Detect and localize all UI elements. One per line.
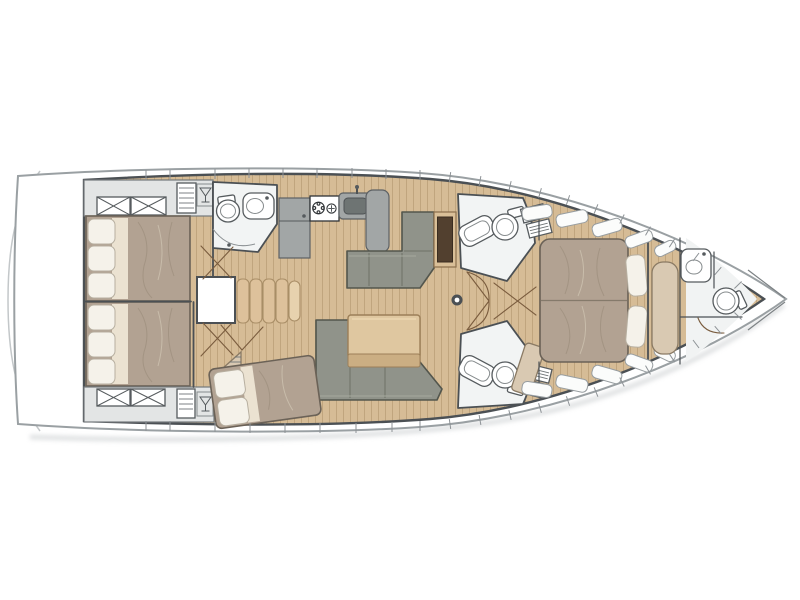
folding-table [348,315,420,367]
pillow [88,273,115,298]
slat-locker [177,389,195,418]
hatch-x-icon [97,389,165,406]
bench-seat [652,262,678,354]
companionway [197,277,300,323]
floor-plan-svg [0,0,800,600]
companionway-stairs [237,279,300,323]
galley-counter [366,190,389,252]
pillow [88,305,115,330]
fridge [279,198,310,258]
pillow [213,369,246,399]
pillow [217,397,250,427]
dark-chart-panel [434,212,456,267]
double-bed [86,302,190,386]
two-burner-stove [310,196,339,221]
slat-locker [177,183,196,213]
drain [227,243,231,247]
sink-vanity [681,249,711,282]
pillow [625,305,648,347]
pillow [88,332,115,357]
double-bed [86,216,190,301]
pillow [88,359,115,384]
pillow [88,246,115,271]
companionway-opening [197,277,235,323]
pillow [625,254,648,296]
sink [243,193,274,219]
yacht-floor-plan [0,0,800,600]
pillow [88,219,115,244]
hatch-x-icon [97,197,166,215]
mast-post-icon [452,295,463,306]
